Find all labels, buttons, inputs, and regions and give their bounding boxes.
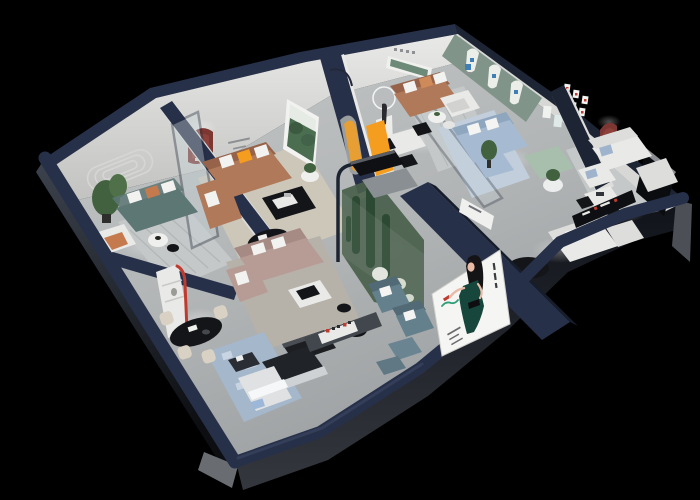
floorplan-svg [0,0,700,500]
brand-mark-top [465,64,471,74]
showroom-render [0,0,700,500]
